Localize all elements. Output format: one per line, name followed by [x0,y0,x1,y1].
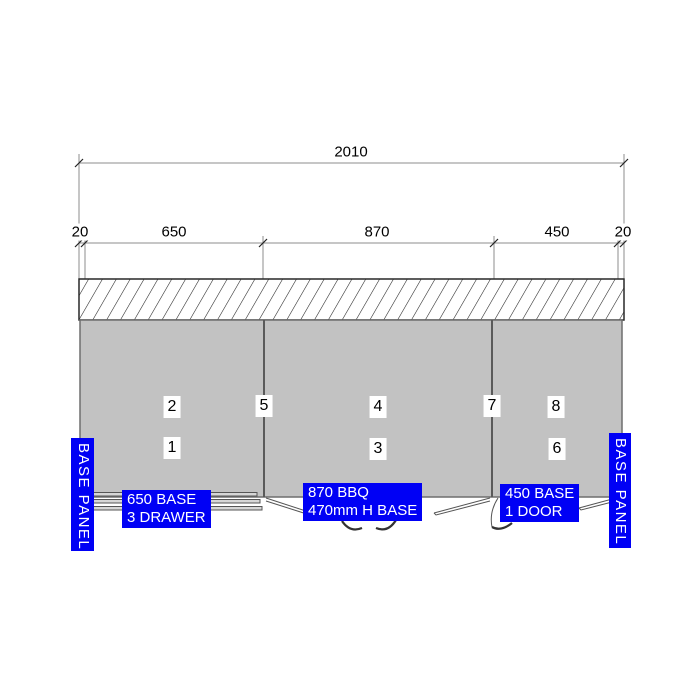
label-870-bbq-line1: 870 BBQ [308,484,417,502]
label-left-base-panel: BASE PANEL [71,438,94,551]
module-tag-7: 7 [484,395,501,417]
dimension-seg-650: 650 [159,224,188,241]
module-tag-1: 1 [164,437,181,459]
label-450-base: 450 BASE 1 DOOR [500,484,579,522]
module-tag-6: 6 [549,438,566,460]
dimension-overall: 2010 [332,144,369,161]
drawing-linework [0,0,700,700]
module-tag-4: 4 [370,396,387,418]
module-tag-3: 3 [370,438,387,460]
cad-drawing-canvas: 2010 20 650 870 450 20 2 1 5 4 3 7 8 6 B… [0,0,700,700]
label-650-base-line1: 650 BASE [127,491,206,509]
label-450-base-line2: 1 DOOR [505,503,574,521]
dimension-seg-450: 450 [542,224,571,241]
bbq-door-arcs [342,520,396,529]
module-tag-8: 8 [548,396,565,418]
door-450-arc [492,523,512,529]
label-870-bbq-line2: 470mm H BASE [308,502,417,520]
cabinet-body [80,320,622,497]
module-tag-2: 2 [164,396,181,418]
dimension-seg-870: 870 [362,224,391,241]
dimension-lines [79,154,624,280]
label-450-base-line1: 450 BASE [505,485,574,503]
label-650-base-line2: 3 DRAWER [127,509,206,527]
label-650-base: 650 BASE 3 DRAWER [122,490,211,528]
dimension-seg-20-left: 20 [70,224,91,241]
countertop-hatch [79,279,624,320]
label-right-base-panel: BASE PANEL [609,433,631,548]
module-tag-5: 5 [256,395,273,417]
label-870-bbq: 870 BBQ 470mm H BASE [303,483,422,521]
dimension-seg-20-right: 20 [613,224,634,241]
